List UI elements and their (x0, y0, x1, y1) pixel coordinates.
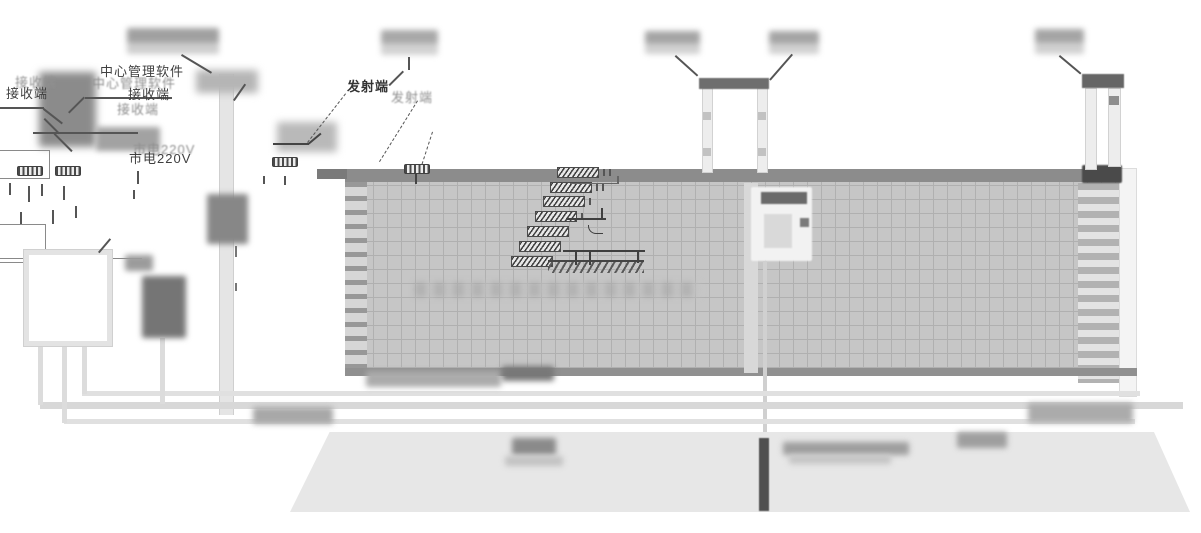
wire-tick7 (75, 206, 77, 218)
mains-tick2 (133, 190, 135, 199)
left-pole (219, 74, 234, 415)
hatched-bar-7 (511, 256, 553, 267)
gate-frame-left-mark4 (758, 148, 766, 156)
bar-tick1 (603, 169, 605, 176)
wire-tick2 (28, 186, 30, 202)
small-device-blob (125, 255, 153, 271)
cable-run-1 (82, 391, 1140, 396)
fence-top-rail-left-cap (317, 169, 347, 179)
bracket-arm (566, 218, 606, 220)
gate-frame-right-crossbar (1082, 74, 1124, 88)
blurred-label-ground-2 (957, 432, 1007, 448)
gate-frame-right-leg1 (1085, 88, 1097, 170)
beam-sensor-transmitter (272, 157, 298, 167)
gate-frame-left-mark3 (703, 148, 711, 156)
cable-run-3 (64, 419, 1135, 424)
blurred-label-top-3 (645, 31, 700, 54)
hatched-bar-5 (527, 226, 569, 237)
leader-top-3 (675, 55, 698, 76)
blurred-label-ground-1 (512, 438, 556, 455)
hatched-bar-1 (557, 167, 599, 178)
dashed-leader-3 (422, 132, 433, 165)
transmitter-label: 发射端 (347, 76, 389, 95)
blurred-blob-right (277, 122, 337, 152)
mains-tick1 (137, 171, 139, 184)
wire-tick4 (63, 186, 65, 200)
blurred-label-top-5 (1035, 29, 1084, 54)
ground-hatch-line (548, 260, 644, 273)
fence-right-post (1119, 168, 1137, 397)
transmitter-label-ghost: 发射端 (391, 87, 433, 106)
cable-drop-2 (62, 337, 67, 423)
blurred-label-cable (253, 407, 333, 424)
sensor-tick3 (415, 174, 417, 184)
keypad-screen (764, 214, 792, 248)
blurred-label-top-1 (127, 28, 219, 54)
gate-frame-right-mark (1109, 96, 1119, 105)
sensor-tick1 (263, 176, 265, 184)
cable-run-2 (40, 402, 1183, 409)
gate-frame-left-mark1 (703, 112, 711, 120)
leader-top-5 (1059, 55, 1081, 74)
leader-top-4 (770, 54, 793, 81)
pole-mounted-detector (207, 194, 248, 244)
bracket-arm-vertical (601, 208, 603, 219)
keypad-conduit-line (763, 261, 767, 438)
receiver-left-label: 接收端 (6, 83, 48, 102)
buried-conduit (759, 438, 769, 511)
hatched-bar-6 (519, 241, 561, 252)
pole-tick2 (235, 283, 237, 291)
mains-power-label: 市电220V (129, 148, 191, 167)
left-pole-top-blob (196, 70, 258, 93)
gate-frame-left-crossbar (699, 78, 769, 89)
gate-frame-left-mark2 (758, 112, 766, 120)
bar-tick4 (602, 184, 604, 191)
bar-tick2 (609, 169, 611, 176)
ground-cross-section (290, 432, 1190, 512)
leader-top-2b (389, 71, 404, 86)
wire-tick6 (52, 210, 54, 224)
beam-sensor-on-fence (404, 164, 430, 174)
blob-underline (33, 132, 138, 134)
bar-tick3 (596, 184, 598, 191)
sensor-bracket (273, 143, 309, 145)
keypad-button (800, 218, 809, 227)
fence-top-rail (345, 169, 1137, 183)
leader-top-2a (408, 57, 410, 70)
receiver-module-2 (55, 166, 81, 176)
diagram-canvas: 中心管理软件 中心管理软件 接收端 接收端 接收端 接收端 发射端 发射端 市电… (0, 0, 1201, 533)
wire-tick3 (41, 184, 43, 196)
dark-device-blob (142, 276, 186, 338)
wire-tick5 (20, 212, 22, 224)
dashed-leader-2 (379, 100, 418, 162)
blurred-label-fence-bottom (366, 371, 501, 387)
keypad-header (761, 192, 807, 204)
gate-frame-left-leg1 (702, 88, 713, 173)
blurred-label-top-4 (769, 31, 819, 54)
sensor-tick2 (284, 176, 286, 185)
receiver-left-underline (0, 107, 44, 109)
receiver-module-1 (17, 166, 43, 176)
blurred-label-conduit-b (789, 455, 891, 464)
blurred-label-top-2 (381, 30, 438, 55)
bar-tick5 (589, 198, 591, 205)
bracket-corner-tick (617, 176, 619, 184)
control-box (24, 250, 112, 346)
fence-left-edge-rails (345, 182, 367, 368)
bracket-leader-line (570, 183, 618, 184)
pole-tick1 (235, 246, 237, 257)
hatched-bar-4 (535, 211, 577, 222)
fence-watermark-blurred-text (415, 282, 700, 297)
blurred-label-right-band (1028, 403, 1133, 423)
wire-tick1 (9, 183, 11, 195)
fence-mesh (345, 182, 1135, 368)
gate-frame-left-leg2 (757, 88, 768, 173)
cable-drop-1 (38, 337, 43, 405)
blurred-label-fence-bottom-dark (502, 366, 554, 381)
blurred-label-conduit (783, 442, 909, 455)
management-software-label: 中心管理软件 (100, 61, 184, 80)
fence-right-end-rails (1078, 183, 1120, 383)
receiver-right-label-ghost: 接收端 (117, 99, 159, 118)
blurred-label-ground-1b (505, 456, 563, 466)
hatched-bar-3 (543, 196, 585, 207)
cable-drop-device (160, 338, 165, 404)
